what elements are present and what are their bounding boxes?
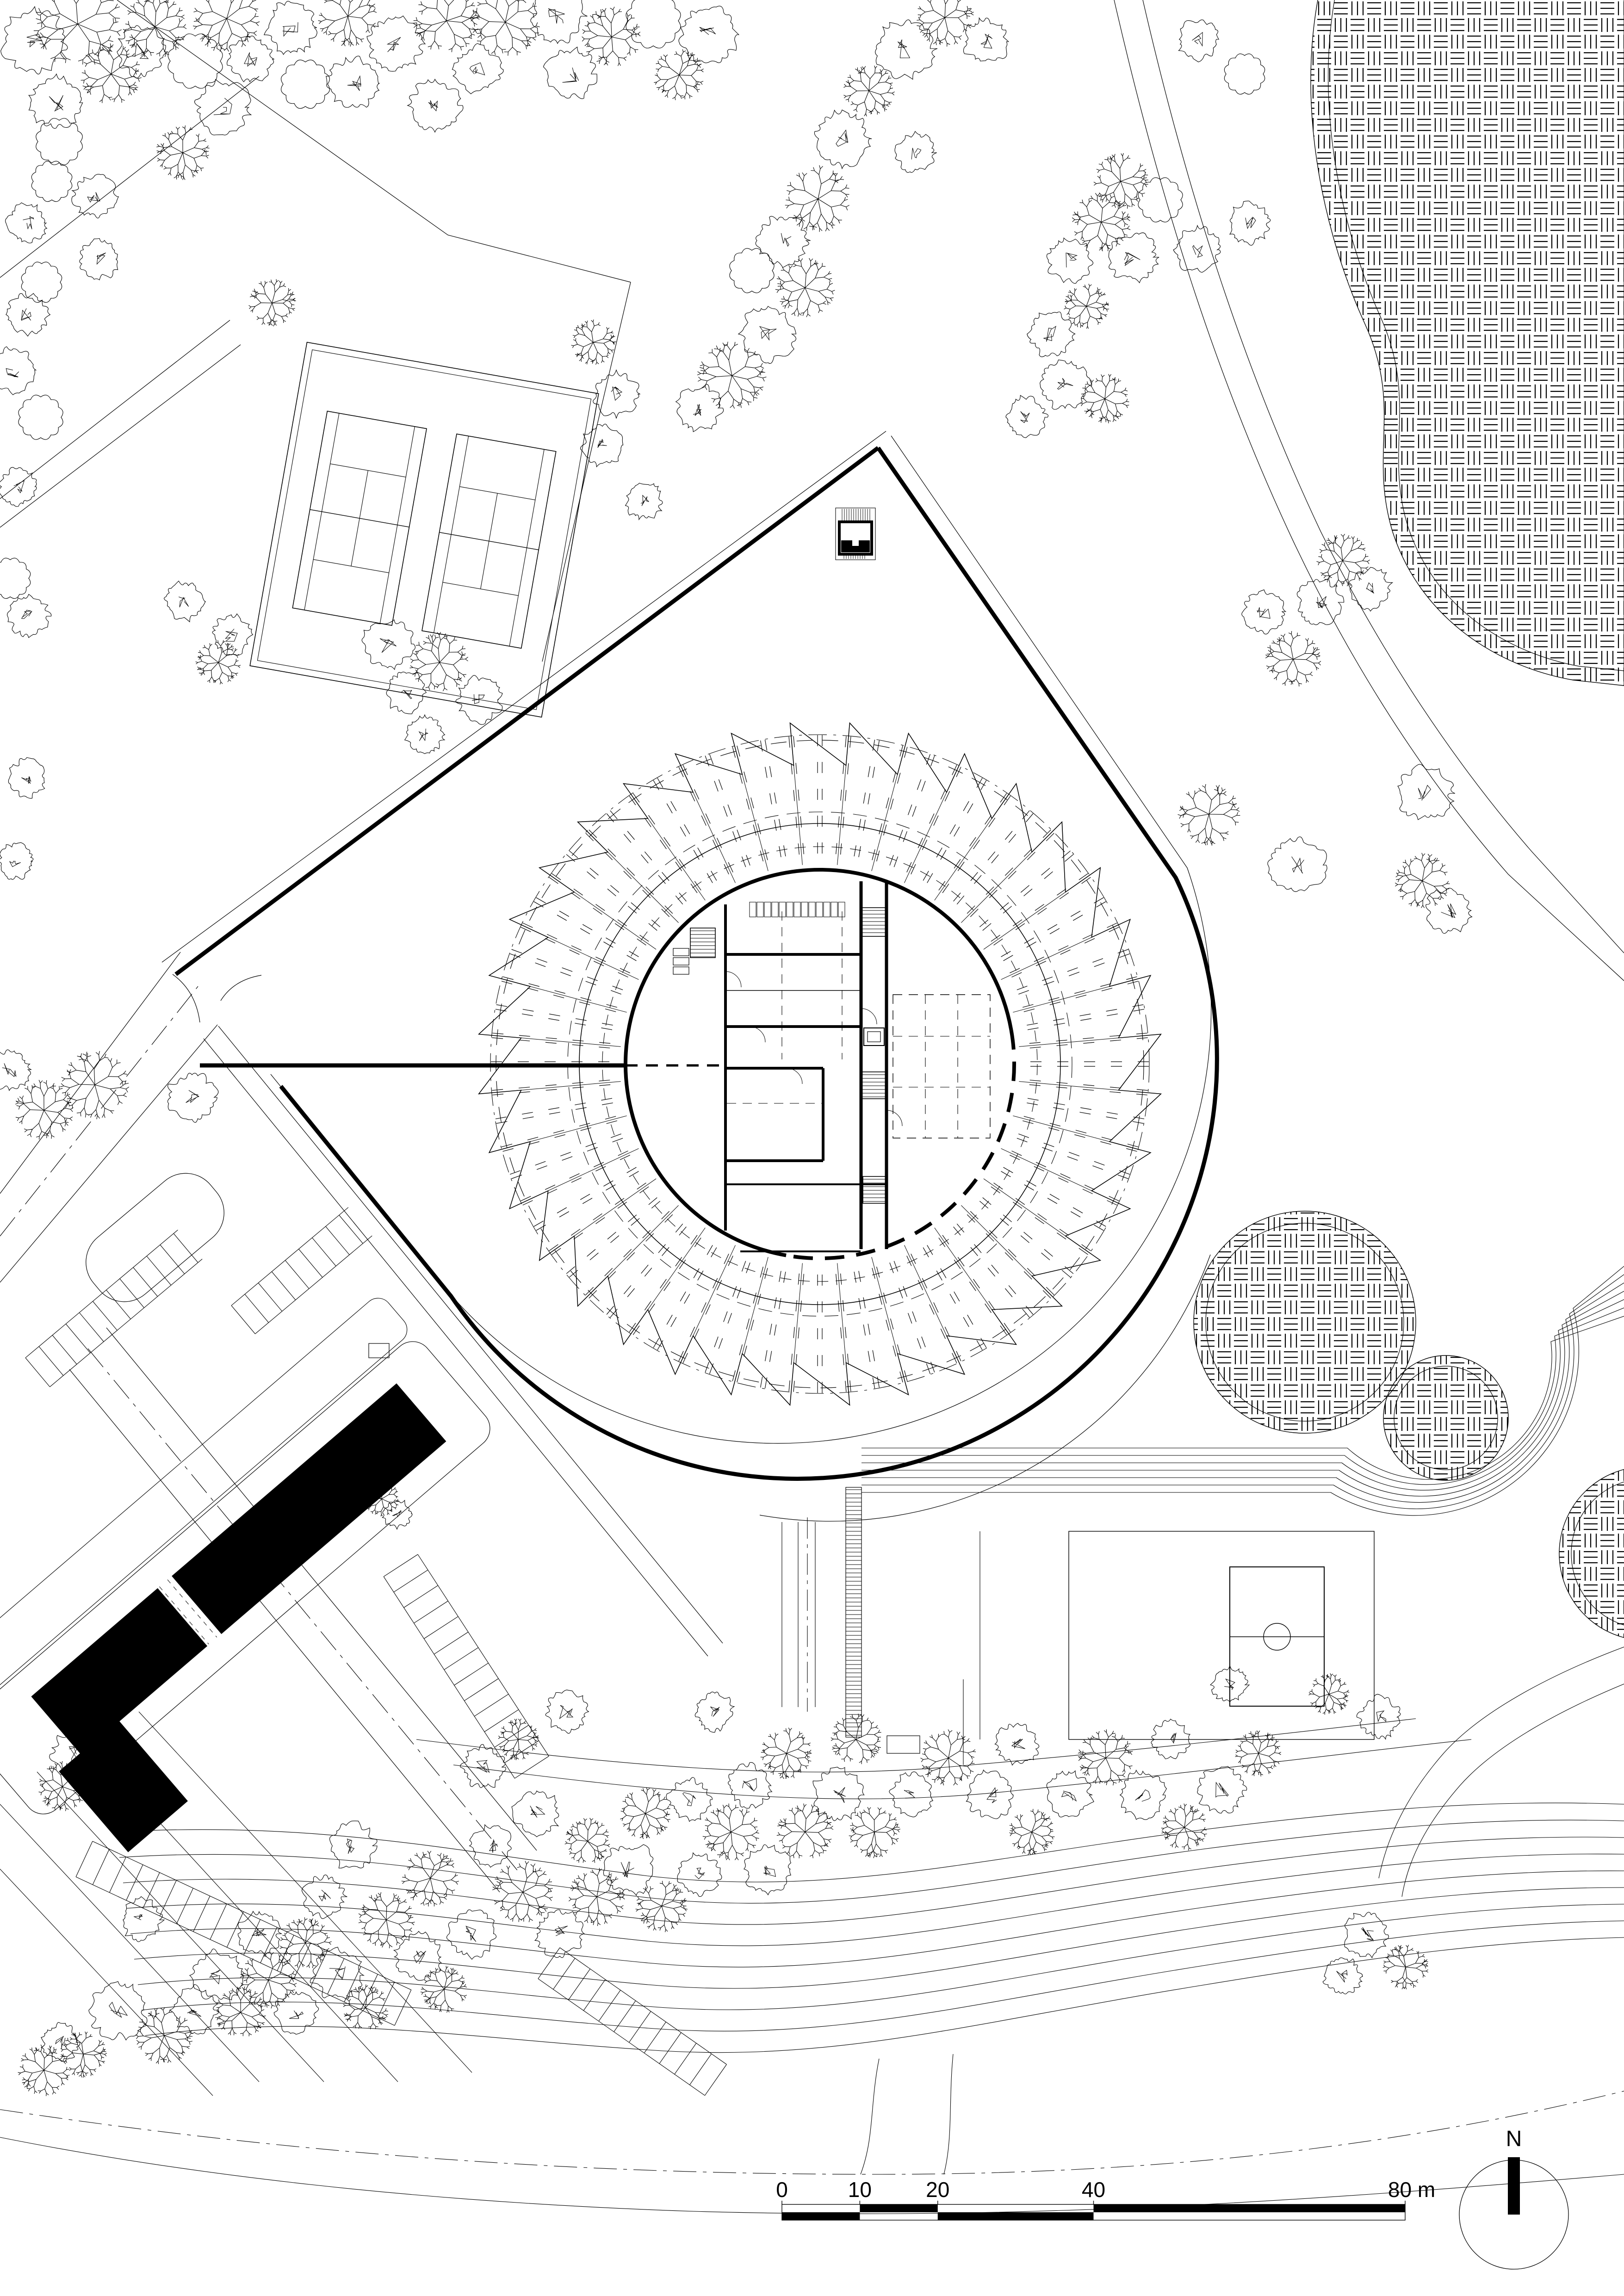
scale-label-40: 40 (1082, 2177, 1105, 2202)
parking-stalls (25, 1230, 202, 1387)
tennis-court-2 (422, 434, 556, 648)
site-plan-page: 0 10 20 40 80 m N (0, 0, 1624, 2296)
building-wing-main (172, 1383, 446, 1634)
north-arrow (1459, 2157, 1568, 2269)
stair-path (846, 1487, 862, 1737)
scale-label-80: 80 m (1388, 2177, 1435, 2202)
paved-plaza-layer (1194, 0, 1624, 1640)
traffic-island (73, 1160, 237, 1315)
stadium-interior (200, 881, 990, 1251)
scale-label-0: 0 (776, 2177, 788, 2202)
scale-bar (782, 2201, 1405, 2220)
parking-stalls (231, 1207, 372, 1334)
parking-stalls (76, 1841, 411, 2025)
housing-block (0, 1293, 550, 1882)
trees-layer (0, 0, 1472, 2096)
entrance-pavilion (836, 508, 875, 560)
north-arrow-bar (1508, 2157, 1520, 2215)
parking-stalls (384, 1554, 549, 1778)
scale-label-10: 10 (848, 2177, 872, 2202)
contour-lines-layer (0, 1647, 1624, 2214)
site-boundary (176, 448, 1217, 1479)
tennis-courts (250, 342, 599, 717)
tennis-court-1 (292, 411, 427, 625)
site-plan-canvas (0, 0, 1624, 2296)
scale-label-20: 20 (926, 2177, 949, 2202)
north-label: N (1506, 2126, 1522, 2152)
stadium-plan (200, 723, 1161, 1405)
